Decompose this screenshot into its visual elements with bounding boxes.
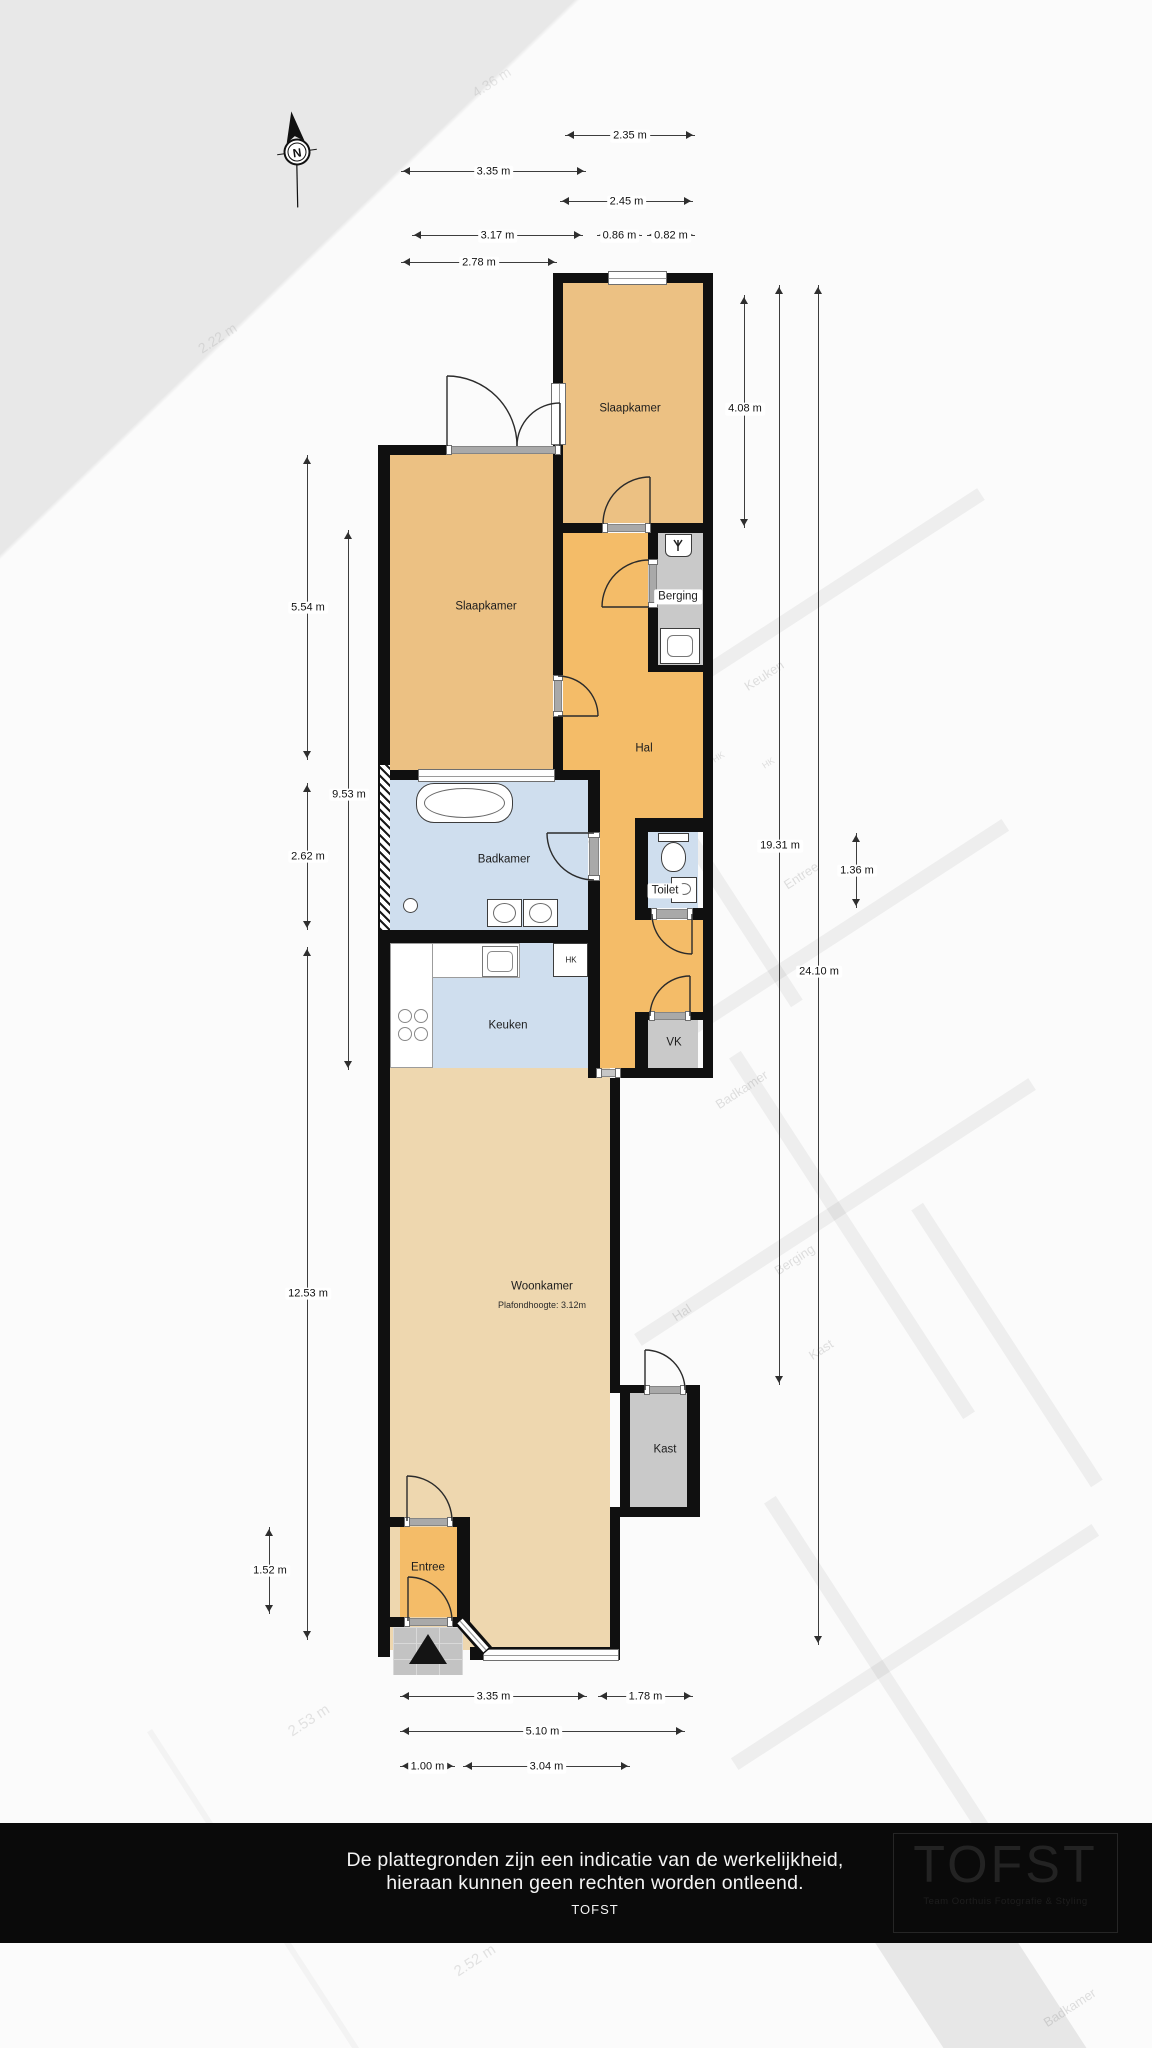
watermark-label: Kast [806, 1336, 836, 1363]
dimension: 0.86 m [597, 235, 642, 236]
room-hal [648, 672, 703, 818]
wall-segment [563, 523, 603, 533]
dimension: 2.45 m [560, 201, 693, 202]
cooktop [396, 1005, 432, 1045]
disclaimer-brand: TOFST [215, 1902, 975, 1917]
dimension: 1.36 m [856, 833, 857, 908]
disclaimer-line-2: hieraan kunnen geen rechten worden ontle… [215, 1872, 975, 1895]
dimension: 19.31 m [779, 285, 780, 1385]
room-sublabel-ceiling-height: Plafondhoogte: 3.12m [498, 1300, 586, 1310]
door-french [447, 446, 560, 454]
wall-segment [648, 665, 703, 672]
door [650, 1012, 690, 1020]
wall-segment [588, 880, 600, 930]
wall-segment [588, 943, 600, 1068]
entrance-arrow-icon [409, 1634, 447, 1664]
wall-segment [703, 273, 713, 1078]
wall-segment [692, 908, 703, 920]
dimension: 0.82 m [647, 235, 695, 236]
wall-segment [650, 523, 703, 533]
dimension: 1.52 m [269, 1527, 270, 1614]
toilet-cistern [658, 833, 689, 842]
watermark-wall [911, 1203, 1102, 1487]
door [589, 833, 599, 880]
wall-segment [452, 1617, 470, 1627]
room-label-vk: VK [666, 1036, 681, 1049]
boiler [665, 534, 692, 557]
wall-segment [390, 1617, 405, 1627]
door-front [405, 1618, 452, 1626]
dimension: 24.10 m [818, 285, 819, 1645]
room-label-badkamer: Badkamer [478, 853, 530, 866]
tofst-logo: TOFST Team Oorthuis Fotografie & Styling [893, 1833, 1118, 1933]
washbasin [487, 899, 522, 927]
watermark-label: HK [760, 755, 776, 770]
door [554, 676, 562, 716]
tofst-logo-subtext: Team Oorthuis Fotografie & Styling [894, 1896, 1117, 1907]
door [652, 909, 692, 919]
dimension: 3.35 m [400, 1696, 587, 1697]
wall-segment [390, 1517, 405, 1527]
watermark-label: 2.52 m [451, 1941, 499, 1980]
wall-segment [610, 1517, 620, 1657]
wall-segment [378, 930, 600, 943]
washbasin [523, 899, 558, 927]
wall-segment [635, 818, 648, 920]
dimension: 5.54 m [307, 455, 308, 760]
watermark-wall [675, 488, 985, 696]
room-label-hk: HK [565, 955, 576, 964]
room-label-entree: Entree [411, 1561, 445, 1574]
dimension: 3.17 m [412, 235, 583, 236]
kitchen-sink [482, 946, 518, 977]
floorplan-page: Keuken HK HK Eetkamer Entree Badkamer Sl… [0, 0, 1152, 2048]
room-label-woonkamer: Woonkamer [511, 1280, 573, 1293]
watermark-label: 2.53 m [285, 1701, 333, 1740]
toilet-bowl [661, 842, 686, 872]
room-hal [563, 533, 648, 770]
dimension: 5.10 m [400, 1731, 685, 1732]
wall-segment [553, 455, 563, 676]
watermark-label: Entree [781, 859, 821, 892]
dimension: 2.78 m [401, 262, 557, 263]
dimension: 2.62 m [307, 783, 308, 930]
dimension: 3.04 m [463, 1766, 630, 1767]
room-label-slaapkamer-2: Slaapkamer [455, 600, 516, 613]
window [551, 383, 566, 445]
wall-segment [620, 1385, 630, 1517]
wall-segment [648, 533, 658, 560]
window [608, 271, 667, 285]
dimension: 9.53 m [348, 530, 349, 1070]
door [405, 1518, 452, 1526]
wall-segment [635, 1012, 648, 1078]
disclaimer-line-1: De plattegronden zijn een indicatie van … [215, 1849, 975, 1872]
dimension: 3.35 m [401, 171, 586, 172]
dimension: 4.08 m [744, 295, 745, 528]
wall-segment [687, 1385, 700, 1517]
wall-segment [610, 1507, 700, 1517]
room-label-slaapkamer-1: Slaapkamer [599, 402, 660, 415]
washing-machine [660, 628, 700, 664]
room-label-hal: Hal [635, 742, 652, 755]
passage-threshold [597, 1069, 620, 1077]
room-label-toilet: Toilet [648, 883, 683, 898]
wall-segment [648, 818, 703, 832]
window [483, 1649, 619, 1661]
dimension: 12.53 m [307, 947, 308, 1640]
room-label-berging: Berging [654, 589, 702, 604]
disclaimer-text: De plattegronden zijn een indicatie van … [215, 1849, 975, 1917]
wall-segment [610, 1078, 620, 1385]
wall-segment [553, 716, 563, 770]
watermark-wall [764, 1496, 1010, 1864]
dimension: 2.35 m [565, 135, 695, 136]
door [645, 1386, 685, 1394]
wall-segment [457, 1517, 470, 1627]
bathtub [416, 783, 513, 823]
window-interior [418, 769, 555, 782]
dimension: 1.78 m [598, 1696, 693, 1697]
wall-segment [588, 780, 600, 833]
wall-segment [690, 1012, 703, 1020]
wall-segment [648, 607, 658, 668]
wall-hatched-segment [380, 765, 390, 930]
dimension: 1.00 m [400, 1766, 455, 1767]
tofst-logo-text: TOFST [894, 1834, 1117, 1896]
shower-icon [403, 898, 418, 913]
wall-segment [620, 1068, 713, 1078]
room-hal [648, 920, 703, 1012]
room-label-kast: Kast [653, 1443, 676, 1456]
room-label-keuken: Keuken [488, 1019, 527, 1032]
door [603, 524, 650, 532]
disclaimer-bar: De plattegronden zijn een indicatie van … [0, 1823, 1152, 1943]
wall-segment [378, 445, 390, 1657]
